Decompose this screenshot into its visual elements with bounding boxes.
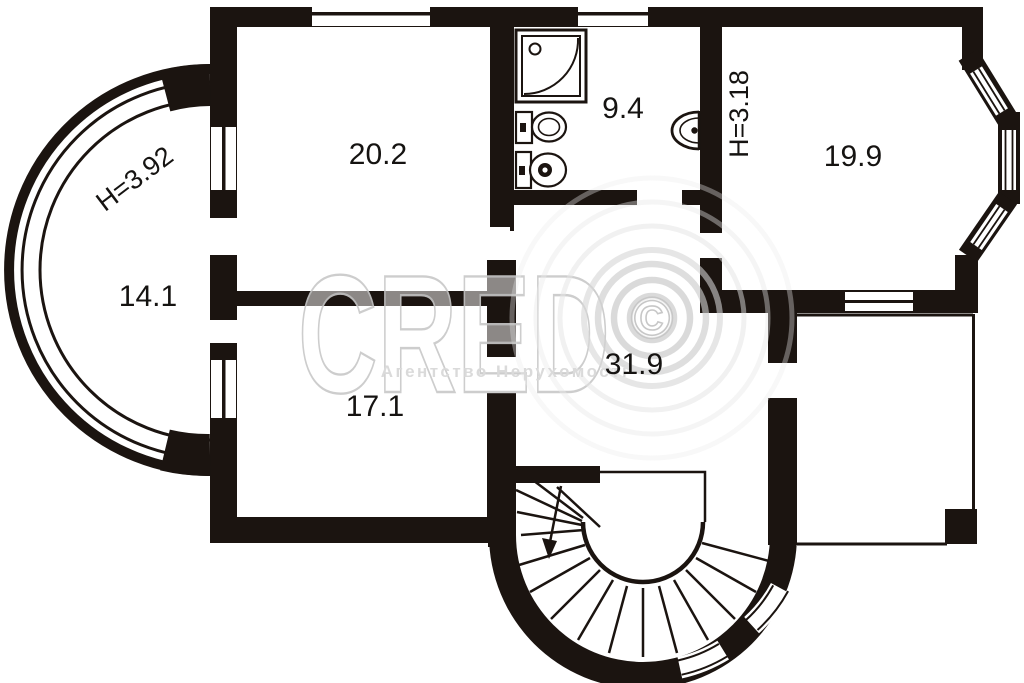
room-area-label-19-9: 19.9 — [824, 140, 882, 173]
spiral-staircase — [489, 468, 797, 683]
wall-hall-balcony-lower — [768, 398, 797, 545]
shower-drain — [530, 44, 541, 55]
stair-landing-arc — [583, 522, 703, 582]
stairs-direction-arrow — [542, 486, 561, 559]
bay-wedge-bottom — [165, 450, 210, 455]
door-jamb — [510, 205, 514, 231]
room-area-label-20-2: 20.2 — [349, 138, 407, 171]
bidet — [516, 152, 566, 188]
balcony-room — [797, 314, 977, 544]
room-area-label-17-1: 17.1 — [346, 390, 404, 423]
watermark-copyright-icon: © — [631, 286, 674, 351]
window-199-bottom — [845, 292, 913, 311]
ceiling-height-label-3-92: H=3.92 — [90, 140, 178, 217]
room-area-label-14-1: 14.1 — [119, 280, 177, 313]
window-left-2 — [211, 360, 236, 418]
wall-left — [210, 27, 237, 543]
wall-bottom-left — [210, 517, 490, 543]
room-area-label-9-4: 9.4 — [602, 92, 644, 125]
room-area-label-31-9: 31.9 — [605, 348, 663, 381]
shower-tray — [516, 30, 586, 102]
wall-bath-199 — [700, 27, 722, 233]
window-top-2 — [578, 2, 648, 26]
wall-199-corner — [955, 255, 978, 313]
wall-center-vertical-upper — [490, 27, 514, 227]
door-14-17 — [209, 320, 238, 343]
watermark-agency-line: Агентство Нерухомості — [381, 362, 630, 381]
wall-sink — [672, 111, 699, 150]
bay-window-right — [968, 55, 1013, 256]
door-14-20 — [209, 218, 238, 255]
window-top-1 — [312, 2, 430, 26]
curved-bay-window-left — [9, 69, 210, 471]
ceiling-height-label-3-18: H=3.18 — [724, 70, 754, 158]
floor-plan-page: CRED © Агентство Нерухомості 20.2 9.4 19… — [0, 0, 1024, 683]
toilet — [516, 112, 566, 143]
floor-plan-svg: CRED © Агентство Нерухомості 20.2 9.4 19… — [0, 0, 1024, 683]
window-left-1 — [211, 127, 236, 190]
balcony-pier — [945, 509, 977, 544]
bay-wedge-top — [165, 85, 210, 91]
